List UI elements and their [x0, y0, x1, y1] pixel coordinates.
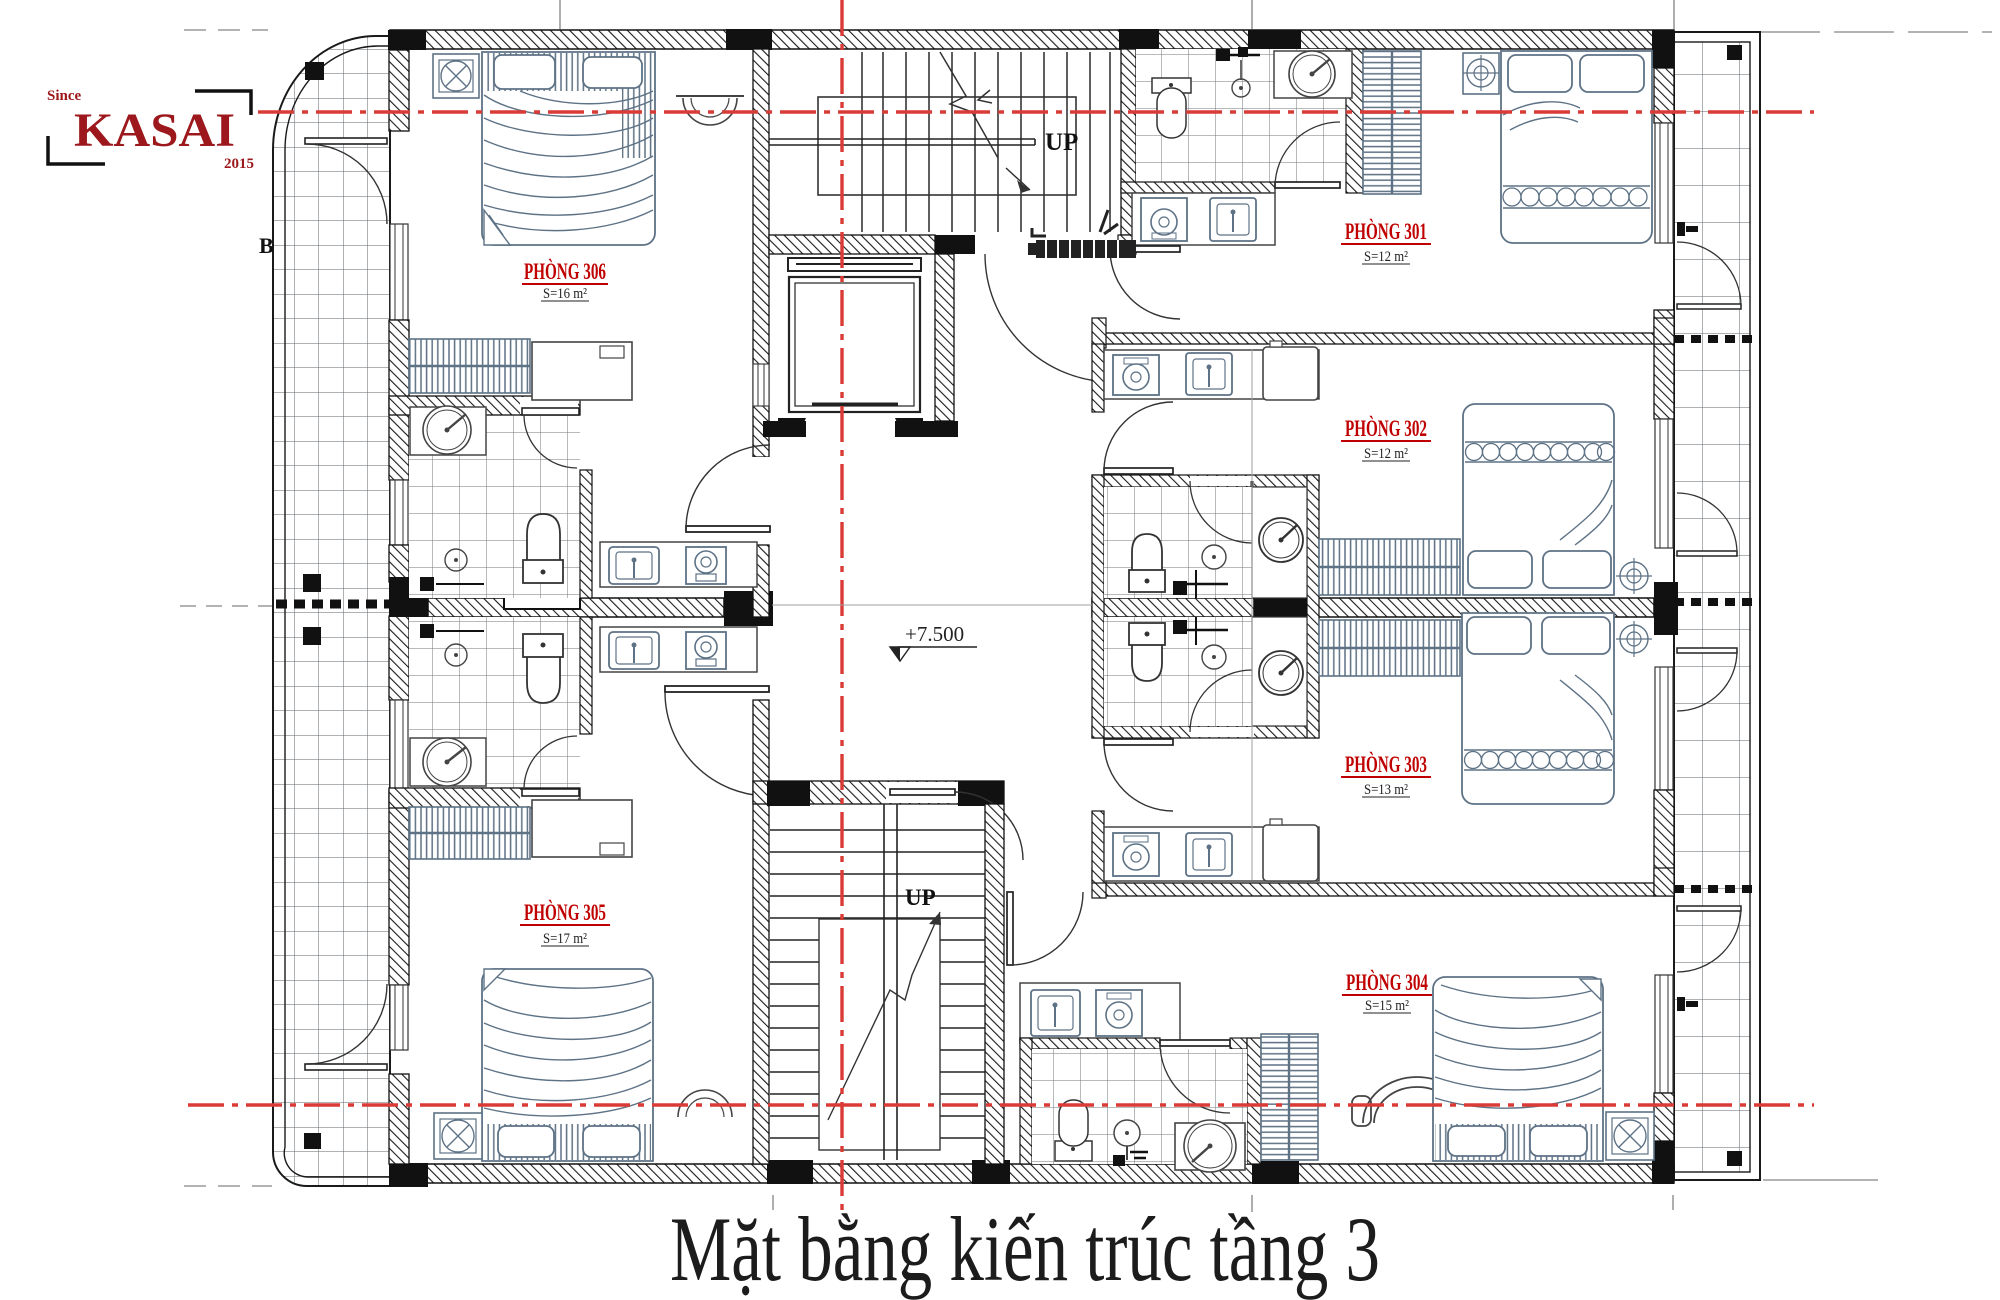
- svg-text:S=12 m²: S=12 m²: [1364, 446, 1408, 462]
- svg-text:Since: Since: [47, 88, 82, 104]
- svg-text:S=12 m²: S=12 m²: [1364, 249, 1408, 265]
- svg-text:PHÒNG 306: PHÒNG 306: [524, 258, 606, 284]
- svg-text:PHÒNG 302: PHÒNG 302: [1345, 415, 1427, 441]
- svg-text:PHÒNG 303: PHÒNG 303: [1345, 751, 1427, 777]
- svg-text:PHÒNG 304: PHÒNG 304: [1346, 969, 1428, 995]
- svg-text:S=13 m²: S=13 m²: [1364, 782, 1408, 798]
- svg-text:PHÒNG 301: PHÒNG 301: [1345, 218, 1427, 244]
- svg-text:+7.500: +7.500: [905, 622, 964, 646]
- svg-text:2015: 2015: [224, 156, 254, 172]
- svg-text:B: B: [259, 233, 274, 258]
- svg-text:PHÒNG 305: PHÒNG 305: [524, 899, 606, 925]
- svg-text:KASAI: KASAI: [74, 104, 235, 157]
- svg-text:S=17 m²: S=17 m²: [543, 931, 587, 947]
- svg-text:UP: UP: [905, 885, 936, 910]
- svg-text:UP: UP: [1045, 129, 1078, 156]
- svg-text:S=15 m²: S=15 m²: [1365, 998, 1409, 1014]
- svg-text:Mặt bằng kiến trúc tầng 3: Mặt bằng kiến trúc tầng 3: [670, 1198, 1380, 1300]
- svg-text:S=16 m²: S=16 m²: [543, 286, 587, 302]
